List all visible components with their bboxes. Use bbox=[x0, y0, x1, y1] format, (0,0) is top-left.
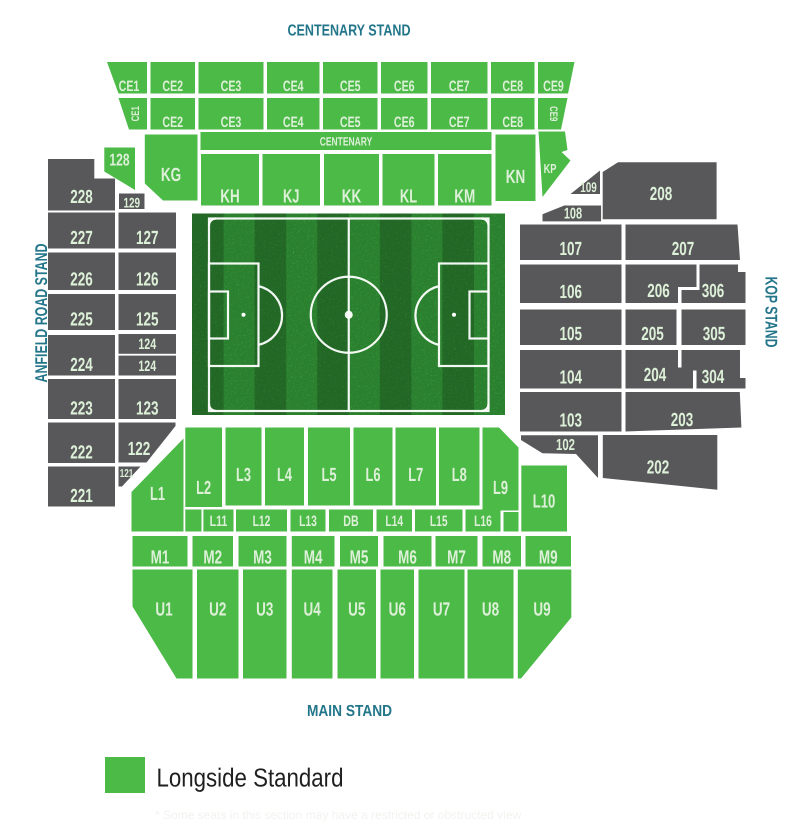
svg-text:226: 226 bbox=[70, 269, 93, 290]
svg-text:CE8: CE8 bbox=[502, 114, 523, 131]
svg-text:221: 221 bbox=[70, 486, 93, 507]
svg-text:CE1: CE1 bbox=[119, 78, 140, 95]
svg-text:222: 222 bbox=[70, 442, 93, 463]
svg-text:L11: L11 bbox=[210, 513, 228, 530]
svg-text:CE9: CE9 bbox=[547, 106, 559, 121]
svg-text:CE4: CE4 bbox=[283, 78, 304, 95]
svg-text:M4: M4 bbox=[304, 548, 323, 569]
svg-text:L9: L9 bbox=[493, 478, 508, 499]
svg-text:CE3: CE3 bbox=[221, 114, 242, 131]
svg-text:U2: U2 bbox=[209, 600, 226, 621]
svg-text:CE8: CE8 bbox=[502, 78, 523, 95]
svg-text:M8: M8 bbox=[492, 548, 511, 569]
svg-text:127: 127 bbox=[136, 228, 159, 249]
svg-text:204: 204 bbox=[644, 365, 667, 386]
svg-text:306: 306 bbox=[702, 281, 725, 302]
svg-text:L6: L6 bbox=[365, 465, 380, 486]
svg-text:M5: M5 bbox=[350, 548, 369, 569]
svg-text:L2: L2 bbox=[196, 478, 211, 499]
svg-text:CE2: CE2 bbox=[162, 78, 183, 95]
svg-text:CENTENARY: CENTENARY bbox=[320, 135, 373, 149]
svg-text:L7: L7 bbox=[408, 465, 423, 486]
svg-text:* Some seats in this section m: * Some seats in this section may have a … bbox=[155, 808, 521, 822]
svg-text:104: 104 bbox=[559, 368, 582, 389]
svg-text:CENTENARY STAND: CENTENARY STAND bbox=[288, 23, 411, 40]
svg-text:KL: KL bbox=[400, 187, 418, 208]
svg-text:L13: L13 bbox=[299, 513, 317, 530]
svg-text:227: 227 bbox=[70, 228, 93, 249]
svg-text:126: 126 bbox=[136, 269, 159, 290]
svg-text:U4: U4 bbox=[304, 600, 322, 621]
svg-text:223: 223 bbox=[70, 398, 93, 419]
svg-text:L4: L4 bbox=[277, 465, 292, 486]
svg-text:L8: L8 bbox=[452, 465, 467, 486]
svg-text:CE5: CE5 bbox=[340, 114, 361, 131]
svg-text:CE6: CE6 bbox=[394, 78, 415, 95]
svg-text:L3: L3 bbox=[236, 465, 251, 486]
svg-text:107: 107 bbox=[559, 239, 582, 260]
svg-text:124: 124 bbox=[138, 336, 156, 353]
svg-text:L5: L5 bbox=[321, 465, 336, 486]
svg-text:123: 123 bbox=[136, 398, 159, 419]
svg-text:122: 122 bbox=[128, 439, 151, 460]
svg-text:224: 224 bbox=[70, 355, 93, 376]
svg-text:125: 125 bbox=[136, 309, 159, 330]
svg-text:106: 106 bbox=[559, 282, 582, 303]
svg-text:KM: KM bbox=[454, 187, 475, 208]
svg-text:CE9: CE9 bbox=[543, 78, 564, 95]
svg-text:228: 228 bbox=[70, 187, 93, 208]
svg-text:U8: U8 bbox=[482, 600, 499, 621]
svg-text:L16: L16 bbox=[474, 513, 492, 530]
svg-text:124: 124 bbox=[138, 358, 156, 375]
svg-text:U5: U5 bbox=[348, 600, 366, 621]
svg-text:103: 103 bbox=[559, 411, 582, 432]
svg-text:102: 102 bbox=[556, 437, 575, 454]
svg-text:CE5: CE5 bbox=[340, 78, 361, 95]
svg-text:KN: KN bbox=[506, 167, 525, 188]
svg-text:121: 121 bbox=[120, 468, 134, 480]
svg-text:Longside Standard: Longside Standard bbox=[157, 763, 344, 793]
svg-text:CE6: CE6 bbox=[394, 114, 415, 131]
svg-text:225: 225 bbox=[70, 309, 93, 330]
svg-text:128: 128 bbox=[109, 151, 129, 170]
svg-text:M1: M1 bbox=[151, 548, 170, 569]
svg-text:L15: L15 bbox=[430, 513, 448, 530]
svg-text:M9: M9 bbox=[539, 548, 558, 569]
svg-text:202: 202 bbox=[647, 458, 670, 479]
svg-text:CE7: CE7 bbox=[449, 114, 470, 131]
svg-text:109: 109 bbox=[580, 179, 597, 195]
svg-text:KK: KK bbox=[342, 187, 362, 208]
svg-text:L14: L14 bbox=[385, 513, 403, 530]
svg-text:CE2: CE2 bbox=[162, 114, 183, 131]
svg-text:CE4: CE4 bbox=[283, 114, 304, 131]
svg-text:129: 129 bbox=[123, 195, 140, 211]
svg-text:203: 203 bbox=[671, 410, 694, 431]
svg-text:U6: U6 bbox=[389, 600, 406, 621]
svg-text:L10: L10 bbox=[533, 492, 556, 513]
svg-text:207: 207 bbox=[672, 239, 695, 260]
svg-text:205: 205 bbox=[641, 324, 664, 345]
svg-text:M7: M7 bbox=[447, 548, 466, 569]
svg-text:KG: KG bbox=[161, 165, 181, 186]
svg-text:105: 105 bbox=[559, 324, 582, 345]
svg-text:MAIN STAND: MAIN STAND bbox=[307, 703, 392, 720]
svg-text:206: 206 bbox=[647, 281, 670, 302]
svg-text:KP: KP bbox=[544, 161, 557, 176]
svg-text:CE1: CE1 bbox=[130, 106, 142, 121]
svg-text:U1: U1 bbox=[155, 600, 173, 621]
svg-text:U9: U9 bbox=[533, 600, 550, 621]
svg-text:U3: U3 bbox=[256, 600, 273, 621]
svg-text:108: 108 bbox=[564, 206, 583, 223]
svg-text:CE7: CE7 bbox=[449, 78, 470, 95]
svg-text:KJ: KJ bbox=[283, 187, 299, 208]
svg-text:305: 305 bbox=[703, 324, 726, 345]
svg-text:KOP STAND: KOP STAND bbox=[762, 277, 781, 348]
svg-text:CE3: CE3 bbox=[221, 78, 242, 95]
svg-text:M2: M2 bbox=[203, 548, 222, 569]
svg-text:M6: M6 bbox=[398, 548, 417, 569]
svg-text:304: 304 bbox=[702, 367, 725, 388]
svg-text:208: 208 bbox=[650, 184, 673, 205]
svg-text:KH: KH bbox=[220, 187, 239, 208]
svg-text:L12: L12 bbox=[253, 513, 271, 530]
svg-text:DB: DB bbox=[343, 513, 358, 530]
svg-text:L1: L1 bbox=[150, 484, 165, 505]
svg-text:M3: M3 bbox=[253, 548, 272, 569]
svg-text:U7: U7 bbox=[433, 600, 450, 621]
